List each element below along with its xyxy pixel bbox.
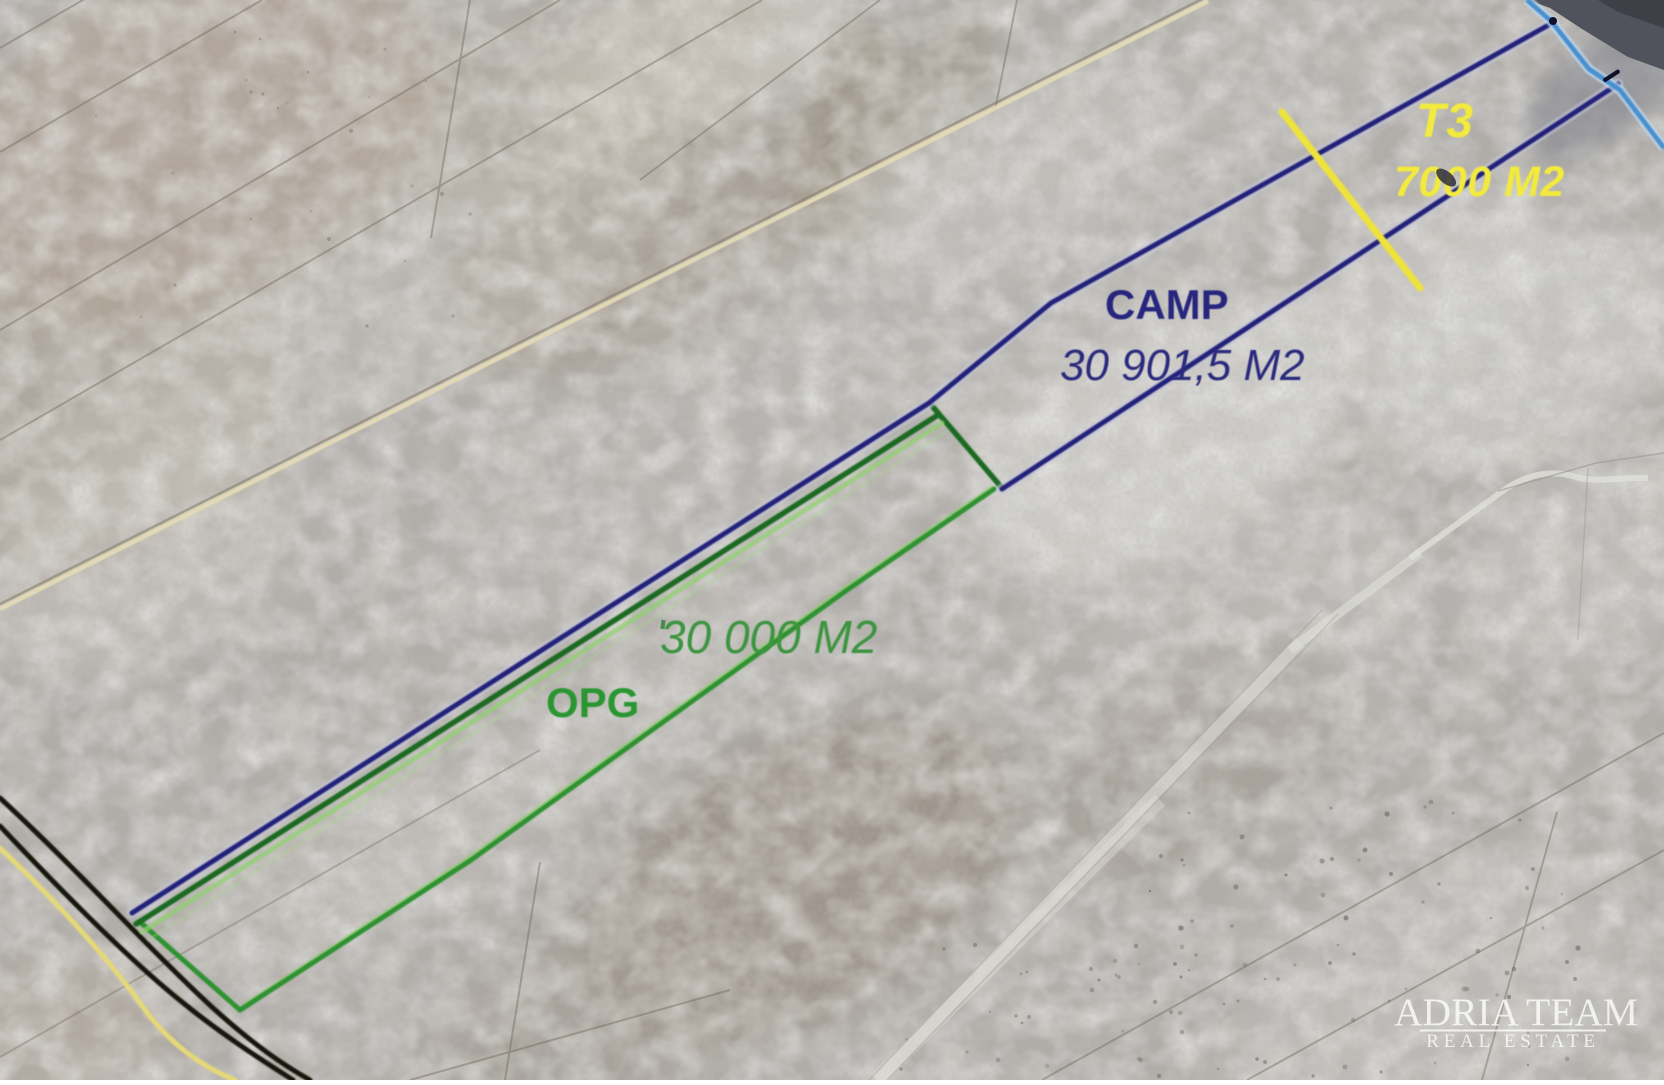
- svg-text:ADRIA TEAM: ADRIA TEAM: [1394, 990, 1638, 1034]
- svg-text:7000 M2: 7000 M2: [1394, 158, 1565, 206]
- svg-text:REAL ESTATE: REAL ESTATE: [1426, 1031, 1600, 1052]
- svg-text:T3: T3: [1416, 95, 1474, 148]
- svg-text:OPG: OPG: [546, 679, 639, 726]
- svg-text:30 901,5 M2: 30 901,5 M2: [1060, 341, 1305, 390]
- svg-text:CAMP: CAMP: [1105, 281, 1229, 328]
- svg-text:30 000 M2: 30 000 M2: [660, 611, 877, 663]
